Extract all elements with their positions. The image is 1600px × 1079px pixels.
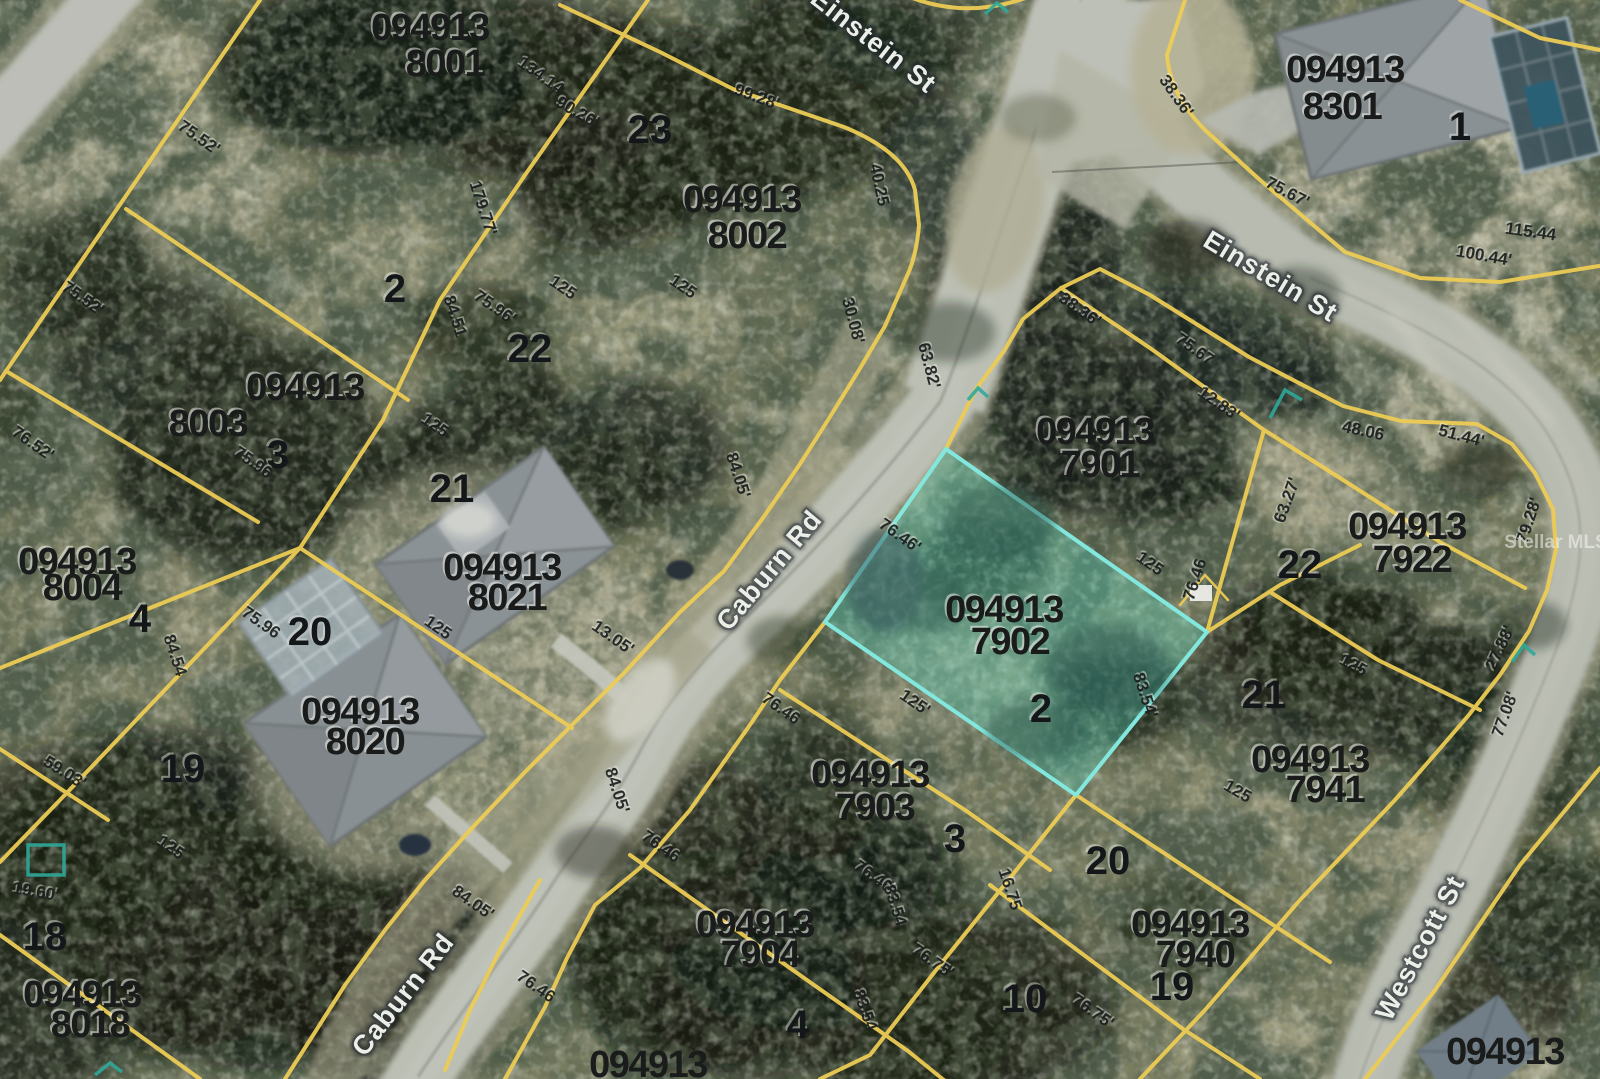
svg-text:22: 22 xyxy=(508,327,553,371)
svg-text:18: 18 xyxy=(23,915,68,959)
svg-text:21: 21 xyxy=(1242,673,1287,717)
svg-text:10: 10 xyxy=(1003,977,1048,1021)
svg-text:2: 2 xyxy=(384,267,406,311)
svg-text:8004: 8004 xyxy=(43,567,123,609)
svg-text:8002: 8002 xyxy=(708,215,787,257)
svg-text:094913: 094913 xyxy=(589,1044,707,1079)
svg-text:Stellar MLS: Stellar MLS xyxy=(1504,532,1600,553)
svg-text:23: 23 xyxy=(628,108,673,152)
svg-text:4: 4 xyxy=(129,597,152,641)
svg-text:094913: 094913 xyxy=(1286,49,1404,91)
svg-text:094913: 094913 xyxy=(1446,1031,1564,1073)
svg-text:3: 3 xyxy=(944,817,966,861)
svg-text:7903: 7903 xyxy=(836,787,915,829)
svg-text:20: 20 xyxy=(288,610,333,654)
svg-text:7904: 7904 xyxy=(721,934,801,976)
svg-text:21: 21 xyxy=(430,467,475,511)
svg-text:8020: 8020 xyxy=(326,721,405,763)
svg-text:8301: 8301 xyxy=(1303,86,1383,128)
svg-text:8018: 8018 xyxy=(51,1004,130,1046)
svg-text:19: 19 xyxy=(161,747,206,791)
svg-text:4: 4 xyxy=(787,1003,810,1047)
svg-text:7941: 7941 xyxy=(1286,769,1366,811)
svg-text:7901: 7901 xyxy=(1061,444,1141,486)
svg-text:8021: 8021 xyxy=(468,577,548,619)
svg-text:20: 20 xyxy=(1086,839,1131,883)
svg-text:7922: 7922 xyxy=(1373,539,1452,581)
svg-text:8003: 8003 xyxy=(169,403,248,445)
svg-text:2: 2 xyxy=(1030,687,1052,731)
svg-text:22: 22 xyxy=(1278,543,1323,587)
svg-text:7902: 7902 xyxy=(971,621,1050,663)
svg-text:1: 1 xyxy=(1449,105,1471,149)
svg-text:094913: 094913 xyxy=(246,367,364,409)
svg-text:19: 19 xyxy=(1150,965,1195,1009)
svg-text:8001: 8001 xyxy=(406,43,486,85)
